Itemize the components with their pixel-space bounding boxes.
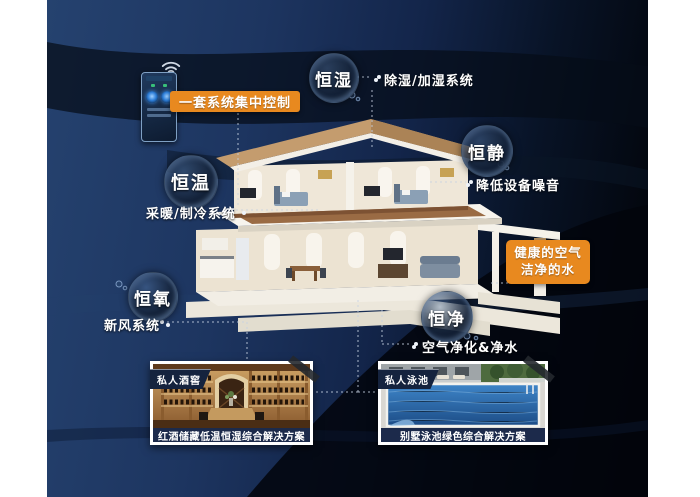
healthy-air-water-box: 健康的空气 洁净的水 [506,240,590,284]
led-icon [163,84,167,87]
photo-caption: 红酒储藏低温恒湿综合解决方案 [153,428,310,442]
bullet-dot-icon [466,183,470,187]
bullet-dot-icon [242,211,246,215]
callout-fresh-air-system: 新风系统 [104,315,170,334]
bullet-dot-icon [166,323,170,327]
panel-button-row [147,108,171,111]
clean-water-line: 洁净的水 [512,262,584,279]
callout-label: 新风系统 [104,315,160,334]
bubble-constant-humidity: 恒湿 [309,53,359,103]
bubble-constant-quiet: 恒静 [461,125,513,177]
bubble-label: 恒湿 [315,66,353,91]
central-control-box: 一套系统集中控制 [170,91,300,112]
bubble-label: 恒净 [428,305,466,330]
callout-label: 除湿/加湿系统 [384,70,474,89]
bubble-label: 恒静 [468,139,506,164]
bubble-label: 恒温 [171,169,211,195]
callout-label: 采暖/制冷系统 [146,203,236,222]
photo-badge: 私人泳池 [378,369,439,389]
bubble-constant-temperature: 恒温 [164,155,218,209]
panel-status-leds [147,84,171,87]
control-knob-icon [146,91,158,103]
panel-button-row [147,114,171,117]
bullet-dot-icon [374,78,378,82]
photo-badge: 私人酒窖 [150,369,211,389]
callout-label: 降低设备噪音 [476,175,560,194]
callout-label: 空气净化&净水 [422,337,518,356]
led-icon [151,84,155,87]
bubble-label: 恒氧 [134,285,172,310]
healthy-air-line: 健康的空气 [512,245,584,262]
bullet-dot-icon [412,345,416,349]
bubble-constant-clean: 恒净 [421,291,473,343]
photo-private-wine-cellar: 私人酒窖 [150,361,313,445]
callout-heating-cooling-system: 采暖/制冷系统 [146,203,246,222]
panel-header [146,76,172,81]
photo-caption: 别墅泳池绿色综合解决方案 [381,428,545,442]
callout-air-water-purification: 空气净化&净水 [412,337,518,356]
infographic-canvas: 一套系统集中控制 恒湿 恒静 恒温 恒氧 恒净 除湿/加湿系统 降低设备噪音 采… [0,0,700,497]
photo-private-pool: 私人泳池 别墅泳 [378,361,548,445]
callout-noise-reduction: 降低设备噪音 [466,175,560,194]
central-control-label: 一套系统集中控制 [179,92,291,111]
callout-dehumidify-system: 除湿/加湿系统 [374,70,474,89]
